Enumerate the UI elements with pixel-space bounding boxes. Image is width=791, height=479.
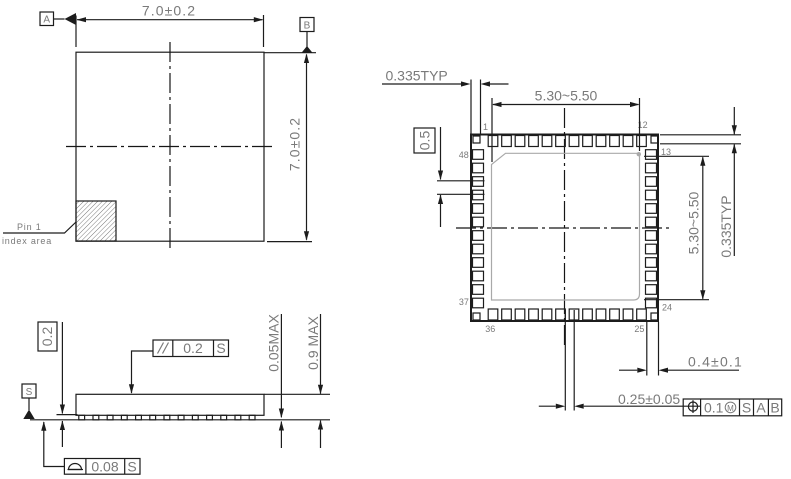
svg-text:0.5: 0.5 (417, 131, 433, 151)
svg-text:Pin 1: Pin 1 (17, 222, 42, 232)
svg-text:0.25±0.05: 0.25±0.05 (618, 391, 680, 407)
svg-text:0.335TYP: 0.335TYP (718, 195, 734, 257)
svg-text:7.0±0.2: 7.0±0.2 (142, 2, 196, 18)
svg-text:7.0±0.2: 7.0±0.2 (287, 117, 303, 171)
svg-text:5.30~5.50: 5.30~5.50 (535, 88, 598, 104)
svg-text:13: 13 (661, 147, 671, 157)
svg-text:A: A (43, 15, 50, 26)
svg-text:25: 25 (634, 324, 644, 334)
svg-text:0.1: 0.1 (704, 399, 724, 415)
svg-text:48: 48 (459, 150, 469, 160)
svg-text:0.08: 0.08 (91, 458, 118, 474)
svg-text:index area: index area (2, 236, 52, 246)
svg-text:0.2: 0.2 (39, 327, 55, 347)
svg-text:M: M (727, 404, 734, 413)
svg-text:24: 24 (662, 303, 672, 313)
svg-text:S: S (742, 399, 751, 415)
svg-text:0.4±0.1: 0.4±0.1 (688, 353, 743, 369)
svg-text:B: B (304, 21, 311, 32)
svg-text:5.30~5.50: 5.30~5.50 (686, 191, 702, 254)
svg-text:1: 1 (483, 122, 488, 132)
svg-text:36: 36 (485, 324, 495, 334)
svg-text:S: S (127, 458, 136, 474)
svg-text:0.05MAX: 0.05MAX (266, 314, 282, 372)
svg-text:S: S (216, 340, 225, 356)
svg-text:0.2: 0.2 (183, 340, 203, 356)
svg-text:B: B (770, 399, 779, 415)
svg-text:A: A (756, 399, 766, 415)
svg-text:S: S (26, 387, 33, 398)
svg-text:0.9 MAX: 0.9 MAX (305, 316, 321, 370)
svg-text:37: 37 (459, 297, 469, 307)
svg-text:0.335TYP: 0.335TYP (386, 67, 448, 83)
